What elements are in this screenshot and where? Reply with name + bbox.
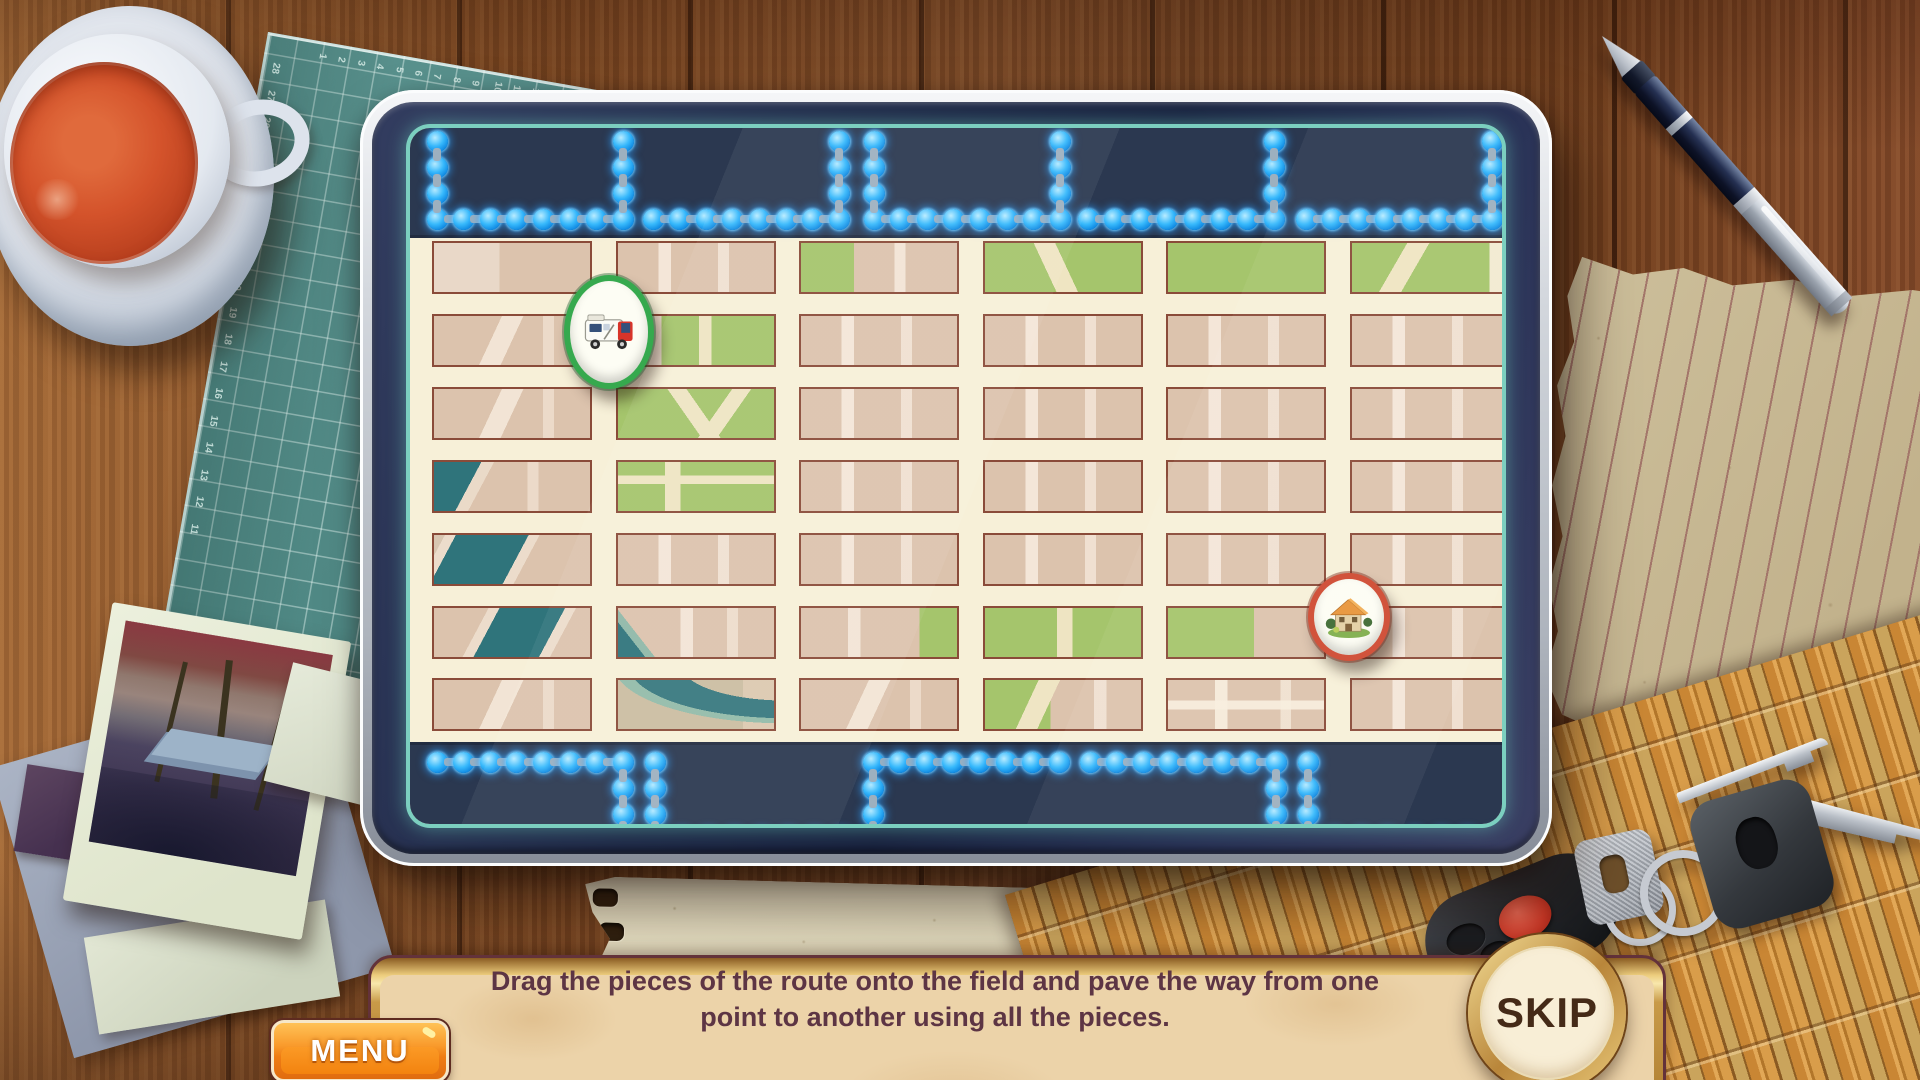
map-block (1166, 241, 1326, 294)
map-block (616, 460, 776, 513)
mat-ruler-number: 16 (212, 387, 225, 400)
map-block (616, 606, 776, 659)
route-link (651, 795, 659, 808)
mat-ruler-number: 15 (207, 414, 220, 427)
route-link (835, 174, 843, 187)
tree-silhouette (210, 660, 233, 799)
route-link (835, 200, 843, 213)
map-block (983, 460, 1143, 513)
route-link (433, 200, 441, 213)
mat-ruler-number: 19 (226, 306, 239, 319)
route-link (433, 174, 441, 187)
mat-ruler-number: 1 (316, 53, 328, 60)
tree-silhouette (154, 662, 188, 783)
mat-ruler-number: 11 (188, 523, 201, 535)
route-link (1270, 174, 1278, 187)
map-block (616, 241, 776, 294)
route-link (869, 769, 877, 782)
skip-button[interactable]: SKIP (1468, 934, 1626, 1080)
route-link (619, 769, 627, 782)
mat-ruler-number: 6 (412, 69, 424, 76)
tablet-bezel (372, 102, 1540, 854)
map-block (799, 460, 959, 513)
map-block (432, 533, 592, 586)
route-link (869, 795, 877, 808)
route-link (1272, 769, 1280, 782)
spiral-hole (593, 888, 618, 907)
route-link (1304, 769, 1312, 782)
route-link (619, 821, 627, 825)
map-block (432, 678, 592, 731)
map-block (432, 387, 592, 440)
mat-ruler-number: 4 (374, 63, 386, 70)
start-marker (564, 275, 654, 389)
map-block (1166, 533, 1326, 586)
mat-ruler-number: 8 (450, 76, 462, 83)
map-block (983, 241, 1143, 294)
route-link (1304, 821, 1312, 825)
instruction-line-1: Drag the pieces of the route onto the fi… (380, 963, 1490, 999)
mat-ruler-number: 5 (393, 66, 405, 73)
route-link (1272, 795, 1280, 808)
map-block (1166, 314, 1326, 367)
map-block (983, 678, 1143, 731)
map-block (983, 533, 1143, 586)
route-link (835, 148, 843, 161)
instruction-text: Drag the pieces of the route onto the fi… (380, 963, 1490, 1035)
map-block (1166, 606, 1326, 659)
map-block (1166, 387, 1326, 440)
map-block (983, 314, 1143, 367)
mat-ruler-number: 7 (431, 73, 443, 80)
map-block (983, 387, 1143, 440)
tablet-device (360, 90, 1552, 866)
map-block (616, 387, 776, 440)
route-link (1056, 200, 1064, 213)
map-block (799, 533, 959, 586)
house-icon (1325, 595, 1373, 639)
tea (10, 62, 198, 264)
map-block (1350, 678, 1502, 731)
mat-ruler-number: 12 (193, 495, 206, 508)
route-link (1488, 200, 1496, 213)
map-block (799, 387, 959, 440)
map-block (1350, 314, 1502, 367)
route-link (1056, 174, 1064, 187)
route-link (619, 148, 627, 161)
menu-button[interactable]: MENU (271, 1020, 449, 1080)
map-block (983, 606, 1143, 659)
menu-button-label: MENU (310, 1033, 409, 1069)
route-link (1270, 148, 1278, 161)
mat-ruler-number: 18 (221, 333, 234, 346)
map-block (1166, 678, 1326, 731)
map-block (799, 241, 959, 294)
map-block (1166, 460, 1326, 513)
puzzle-screen (410, 128, 1502, 824)
route-link (619, 795, 627, 808)
camper-van-icon (583, 311, 635, 353)
mat-ruler-number: 17 (216, 360, 229, 373)
route-link (619, 174, 627, 187)
map-block (432, 241, 592, 294)
map-block (1350, 387, 1502, 440)
map-block (799, 678, 959, 731)
map-block (1350, 460, 1502, 513)
route-link (870, 148, 878, 161)
mat-ruler-number: 9 (469, 80, 481, 87)
route-link (1272, 821, 1280, 825)
route-link (433, 148, 441, 161)
route-link (1270, 200, 1278, 213)
map-block (616, 678, 776, 731)
skip-button-label: SKIP (1496, 989, 1598, 1037)
mat-ruler-number: 28 (269, 62, 282, 75)
map-block (1350, 241, 1502, 294)
instruction-line-2: point to another using all the pieces. (380, 999, 1490, 1035)
map-block (799, 314, 959, 367)
map-block (799, 606, 959, 659)
mat-ruler-number: 14 (202, 441, 215, 454)
route-link (1056, 148, 1064, 161)
game-scene: 123456789101112131415161718192021222324 … (0, 0, 1920, 1080)
mat-ruler-number: 13 (197, 468, 210, 481)
map-block (432, 606, 592, 659)
mat-ruler-number: 3 (355, 59, 367, 66)
route-link (651, 821, 659, 825)
route-link (1488, 174, 1496, 187)
route-link (870, 174, 878, 187)
map-block (616, 533, 776, 586)
route-link (870, 200, 878, 213)
skip-button-face: SKIP (1480, 946, 1614, 1080)
map-block (432, 460, 592, 513)
route-link (869, 821, 877, 825)
mat-ruler-number: 2 (336, 56, 348, 63)
route-dot (1049, 752, 1070, 773)
route-link (1488, 148, 1496, 161)
route-link (1304, 795, 1312, 808)
route-link (619, 200, 627, 213)
goal-marker (1308, 573, 1390, 661)
route-link (651, 769, 659, 782)
map-block (1350, 533, 1502, 586)
